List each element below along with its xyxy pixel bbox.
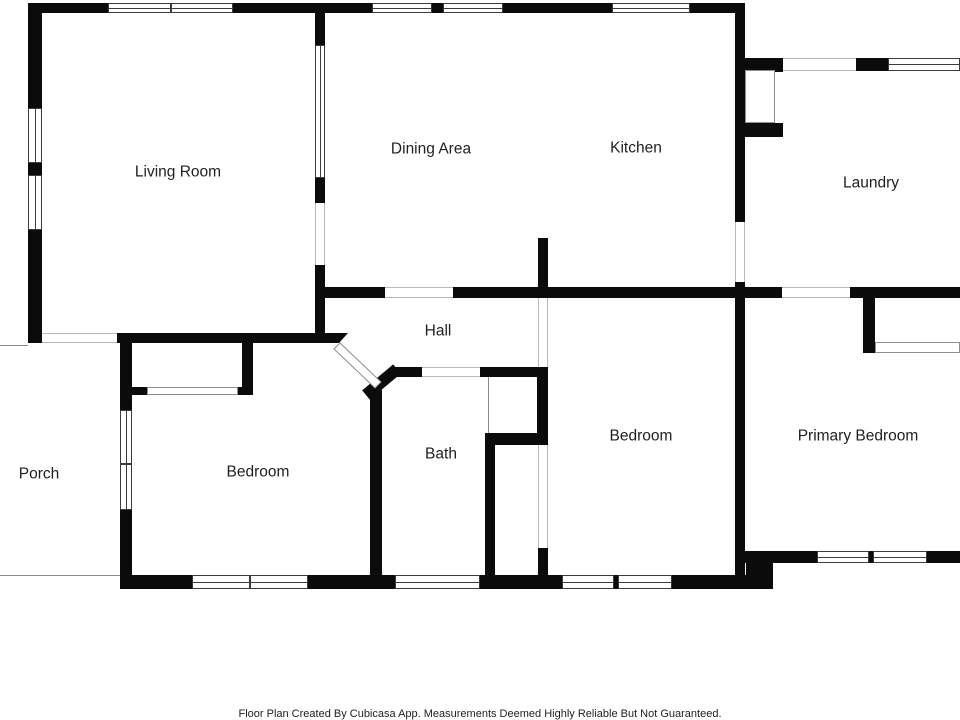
door-opening [783,58,856,71]
door-opening [782,287,850,298]
closet-door-panel [875,342,960,353]
window [315,45,325,178]
window [562,575,614,589]
door-leaf [745,70,775,123]
floor-plan: Floor Plan Created By Cubicasa App. Meas… [0,0,960,720]
wall-segment [390,367,422,377]
window [28,108,42,163]
room-label-bedroom-left: Bedroom [227,464,290,483]
door-opening [538,298,548,367]
wall-segment [485,445,495,589]
window [395,575,480,589]
wall-segment [117,333,339,343]
wall-segment [370,390,382,589]
wall-segment [28,3,42,343]
wall-segment [538,238,548,298]
window [873,551,927,563]
window [443,3,503,13]
wall-segment [238,387,253,395]
wall-segment [132,387,147,395]
wall-segment [538,548,548,577]
room-label-kitchen: Kitchen [610,140,662,159]
room-label-dining-area: Dining Area [391,141,471,160]
wall-segment [863,298,875,353]
footer-text: Floor Plan Created By Cubicasa App. Meas… [238,708,721,720]
room-label-laundry: Laundry [843,175,899,194]
porch-boundary-line [488,377,489,433]
porch-boundary-line [0,345,28,346]
room-label-primary-bedroom: Primary Bedroom [798,428,919,447]
window [28,175,42,230]
door-opening [538,445,548,548]
window [108,3,171,13]
window [120,464,132,510]
door-opening [42,333,117,343]
window [120,410,132,464]
porch-boundary-line [0,575,120,576]
closet-door-panel [147,387,238,395]
door-opening [385,287,453,298]
wall-segment [485,433,548,445]
door-opening [422,367,480,377]
window [618,575,672,589]
floor-plan-diagonal-overlay [0,0,960,720]
room-label-hall: Hall [425,323,452,342]
door-opening [735,222,745,282]
window [888,58,960,71]
room-label-living-room: Living Room [135,164,221,183]
door-opening [315,203,325,265]
wall-end-bevel [339,333,348,343]
window [372,3,432,13]
window [612,3,690,13]
wall-segment [746,563,773,576]
room-label-bedroom-middle: Bedroom [610,428,673,447]
room-label-porch: Porch [19,466,60,485]
room-label-bath: Bath [425,446,457,465]
wall-segment [745,123,783,137]
window [192,575,250,589]
window [817,551,869,563]
window [171,3,233,13]
wall-segment [120,333,132,410]
wall-segment [856,58,888,71]
window [250,575,308,589]
angled-door-leaf [334,343,381,388]
